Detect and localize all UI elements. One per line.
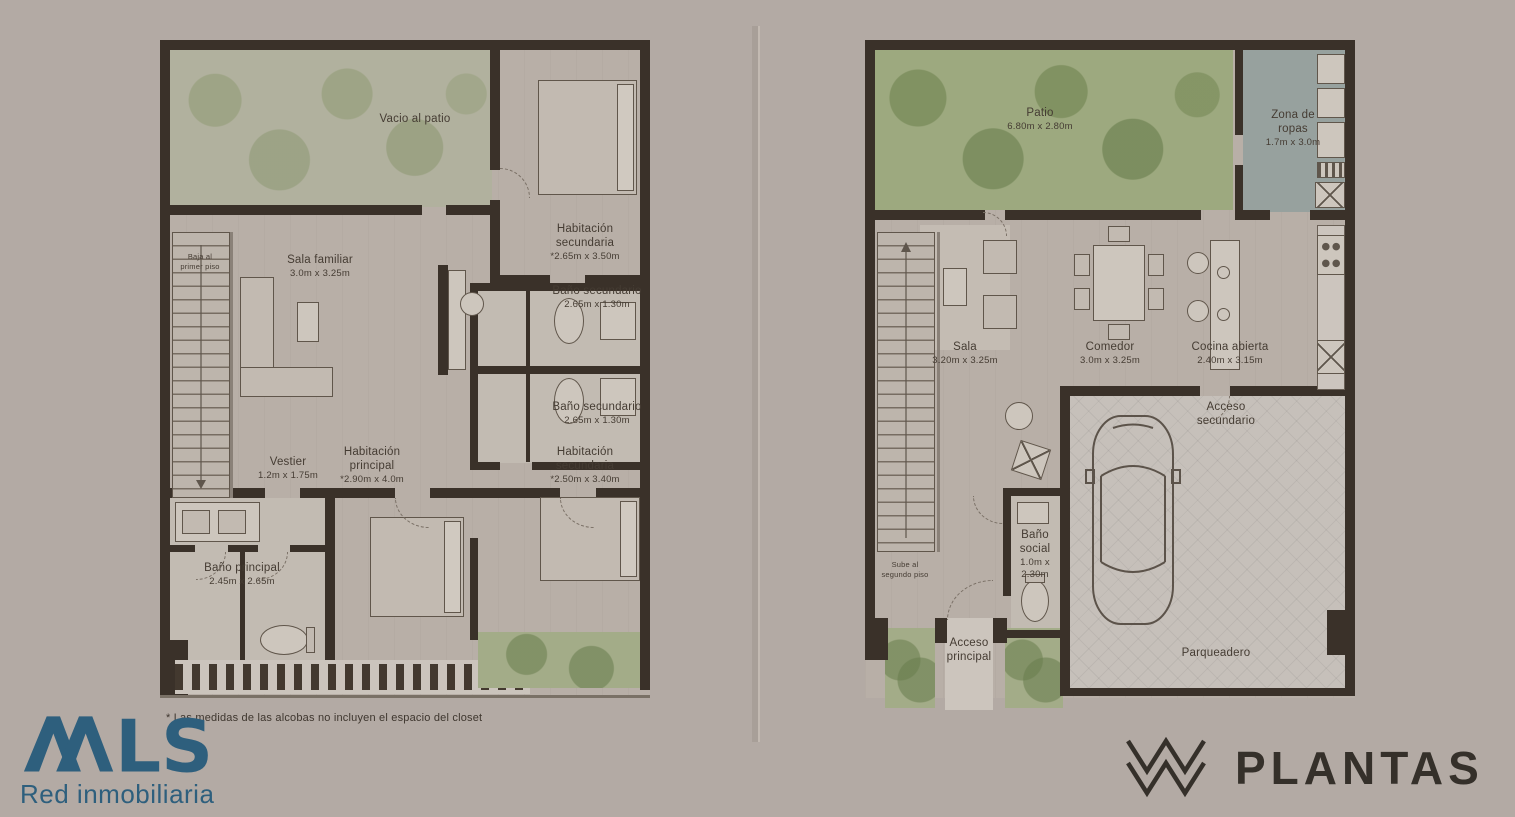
svg-text:LS: LS: [115, 708, 212, 778]
stair-rail: [937, 232, 940, 552]
wall: [490, 50, 500, 170]
room-label-vacio: Vacio al patio: [380, 112, 451, 126]
room-name: Cocina abierta: [1192, 340, 1269, 354]
stairs-up-arrow: [901, 240, 911, 540]
desk: [448, 270, 466, 370]
plantas-wordmark: PLANTAS: [1235, 741, 1484, 795]
room-name: Baño secundario: [552, 284, 641, 298]
wall: [1060, 688, 1355, 696]
room-label-habitacion-principal: Habitación principal *2.90m x 4.0m: [330, 445, 415, 486]
room-name: Baño secundario: [552, 400, 641, 414]
room-label-parqueadero: Parqueadero: [1182, 646, 1251, 660]
room-name: Baño social: [1006, 528, 1064, 556]
room-name: Sube al segundo piso: [878, 560, 932, 580]
wall: [865, 40, 1355, 50]
wall: [290, 545, 325, 552]
chair: [1148, 254, 1164, 276]
room-label-acceso-secundario: Acceso secundario: [1179, 400, 1274, 428]
floor-plan-sheet: Vacio al patio Habitación secundaria *2.…: [0, 0, 1515, 817]
room-dims: 2.65m x 1.30m: [564, 299, 629, 311]
room-name: Habitación secundaria: [538, 445, 633, 473]
stairs-label: Sube al segundo piso: [878, 560, 932, 580]
sink: [182, 510, 210, 534]
stool: [1187, 300, 1209, 322]
room-label-habitacion-secundaria-2: Habitación secundaria *2.50m x 3.40m: [538, 445, 633, 486]
room-dims: 1.7m x 3.0m: [1266, 137, 1320, 149]
room-name: Comedor: [1086, 340, 1135, 354]
chair: [1074, 254, 1090, 276]
wall: [1235, 40, 1243, 135]
toilet: [1021, 580, 1049, 622]
wall: [1060, 386, 1200, 396]
toilet: [260, 625, 308, 655]
room-dims: 3.0m x 3.25m: [1080, 355, 1140, 367]
room-dims: 1.0m x 2.30m: [1006, 557, 1064, 580]
wall: [1235, 165, 1243, 220]
washer: [1317, 54, 1345, 84]
footnote: * Las medidas de las alcobas no incluyen…: [166, 712, 482, 724]
plant-pot: [1005, 402, 1033, 430]
wall: [438, 265, 448, 375]
room-name: Acceso secundario: [1179, 400, 1274, 428]
room-label-zona-de-ropas: Zona de ropas 1.7m x 3.0m: [1259, 108, 1327, 149]
stair-rail: [230, 232, 233, 498]
side-table: [297, 302, 319, 342]
room-name: Baño principal: [204, 561, 280, 575]
plantas-logo-mark: [1125, 737, 1213, 799]
mls-logo-mark: LS: [22, 708, 212, 778]
room-dims: 6.80m x 2.80m: [1007, 121, 1072, 133]
room-name: Sala familiar: [287, 253, 353, 267]
second-floor-plan: Vacio al patio Habitación secundaria *2.…: [160, 40, 650, 712]
room-dims: 1.2m x 1.75m: [258, 470, 318, 482]
wall: [1005, 210, 1201, 220]
room-label-cocina-abierta: Cocina abierta 2.40m x 3.15m: [1175, 340, 1285, 367]
void-patio-zone: [170, 50, 492, 207]
bed: [370, 517, 464, 617]
sofa-seat: [240, 367, 333, 397]
room-dims: *2.65m x 3.50m: [550, 251, 619, 263]
room-dims: 2.65m x 1.30m: [564, 415, 629, 427]
room-name: Parqueadero: [1182, 646, 1251, 660]
room-name: Patio: [1026, 106, 1053, 120]
wall: [1003, 488, 1070, 496]
room-label-acceso-principal: Acceso principal: [929, 636, 1009, 664]
laundry-basket: [1317, 162, 1345, 178]
planter: [885, 628, 935, 708]
wall: [1243, 210, 1270, 220]
car-top-view: [1083, 412, 1183, 630]
wall: [1345, 40, 1355, 695]
wall: [160, 40, 650, 50]
stool: [1187, 252, 1209, 274]
room-label-sala-familiar: Sala familiar 3.0m x 3.25m: [287, 253, 353, 280]
room-dims: *2.90m x 4.0m: [340, 474, 404, 486]
wall: [1310, 210, 1355, 220]
stairs-label: Baja al primer piso: [176, 252, 224, 272]
room-name: Habitación secundaria: [538, 222, 633, 250]
plans-divider: [752, 26, 760, 742]
armchair: [983, 295, 1017, 329]
sink: [1017, 502, 1049, 524]
room-name: Baja al primer piso: [176, 252, 224, 272]
room-name: Zona de ropas: [1259, 108, 1327, 136]
room-name: Vestier: [270, 455, 307, 469]
ground-line: [160, 695, 650, 698]
first-floor-plan: Patio 6.80m x 2.80m Zona de ropas 1.7m x…: [865, 40, 1355, 712]
room-label-habitacion-secundaria-1: Habitación secundaria *2.65m x 3.50m: [538, 222, 633, 263]
wall: [160, 205, 422, 215]
wall: [446, 205, 500, 215]
armchair: [983, 240, 1017, 274]
wall: [160, 40, 170, 642]
wall: [470, 462, 500, 470]
room-label-sala: Sala 3.20m x 3.25m: [932, 340, 997, 367]
island-sink: [1217, 308, 1230, 321]
room-name: Sala: [953, 340, 977, 354]
chair: [1108, 226, 1130, 242]
louver-hatch: [175, 664, 530, 690]
mls-logo: LS: [22, 708, 212, 783]
wall: [865, 210, 985, 220]
chair: [1148, 288, 1164, 310]
room-dims: 2.45m x 2.65m: [209, 576, 274, 588]
planter: [1005, 628, 1063, 708]
room-label-patio: Patio 6.80m x 2.80m: [1007, 106, 1072, 133]
wall: [300, 488, 395, 498]
room-label-bano-principal: Baño principal 2.45m x 2.65m: [177, 561, 307, 588]
wall: [640, 40, 650, 690]
room-dims: *2.50m x 3.40m: [550, 474, 619, 486]
room-label-vestier: Vestier 1.2m x 1.75m: [258, 455, 318, 482]
wall: [865, 618, 888, 660]
laundry-sink: [1315, 182, 1345, 208]
room-dims: 2.40m x 3.15m: [1197, 355, 1262, 367]
wall: [1327, 610, 1355, 655]
dining-table: [1093, 245, 1145, 321]
wall: [228, 545, 258, 552]
room-name: Vacio al patio: [380, 112, 451, 126]
stove: [1317, 235, 1345, 275]
bed: [538, 80, 637, 195]
wall: [1003, 630, 1070, 638]
wall: [470, 538, 478, 640]
room-name: Habitación principal: [330, 445, 415, 473]
room-label-bano-social: Baño social 1.0m x 2.30m: [1006, 528, 1064, 580]
chair: [1074, 288, 1090, 310]
wall: [325, 498, 335, 663]
room-dims: 3.0m x 3.25m: [290, 268, 350, 280]
room-label-bano-secundario-2: Baño secundario 2.65m x 1.30m: [522, 400, 672, 427]
sink: [218, 510, 246, 534]
stairs-down-arrow: [196, 245, 206, 490]
room-label-comedor: Comedor 3.0m x 3.25m: [1080, 340, 1140, 367]
coffee-table: [943, 268, 967, 306]
wall: [170, 545, 195, 552]
mls-tagline: Red inmobiliaria: [20, 779, 214, 810]
room-name: Acceso principal: [929, 636, 1009, 664]
toilet-tank: [306, 627, 315, 653]
plantas-logo: PLANTAS: [1125, 737, 1484, 799]
wall: [470, 366, 650, 374]
room-label-bano-secundario-1: Baño secundario 2.65m x 1.30m: [522, 284, 672, 311]
chair: [1108, 324, 1130, 340]
room-dims: 3.20m x 3.25m: [932, 355, 997, 367]
kitchen-sink: [1317, 340, 1345, 374]
island-sink: [1217, 266, 1230, 279]
wall: [865, 40, 875, 630]
desk-chair: [460, 292, 484, 316]
planter: [478, 632, 640, 688]
